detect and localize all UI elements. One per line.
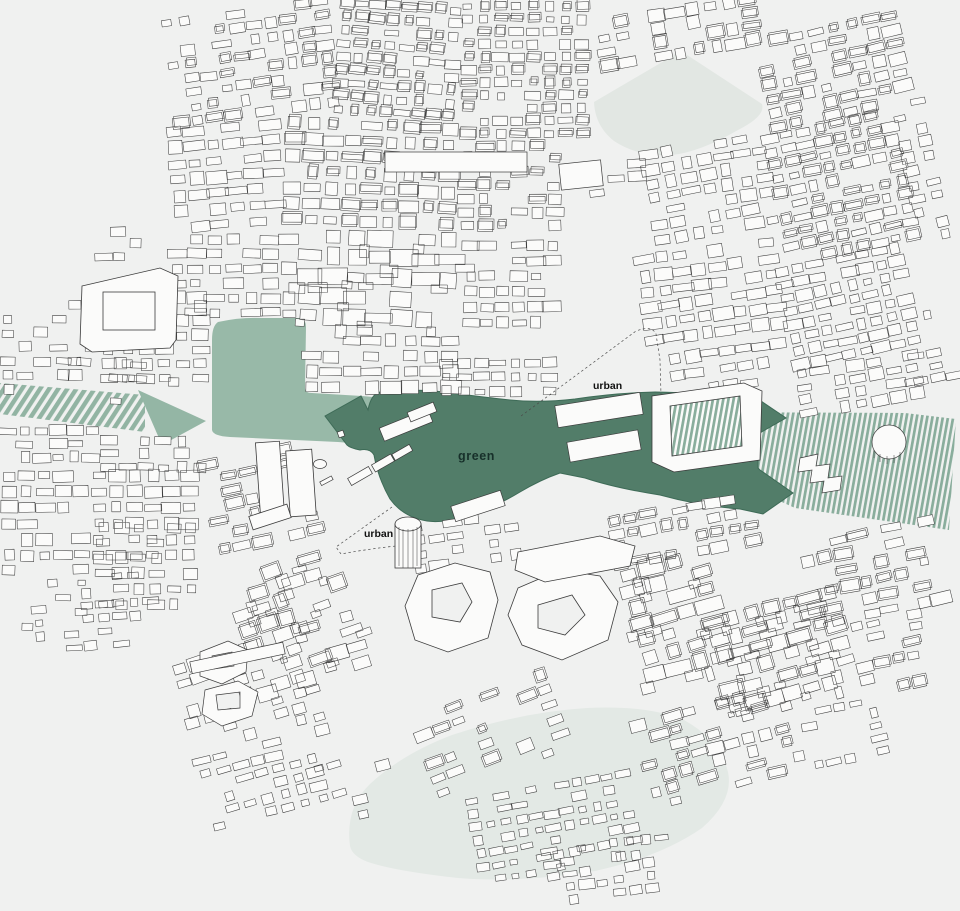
svg-text:urban: urban (364, 528, 393, 540)
svg-text:urban: urban (593, 380, 622, 392)
svg-text:green: green (458, 449, 495, 463)
